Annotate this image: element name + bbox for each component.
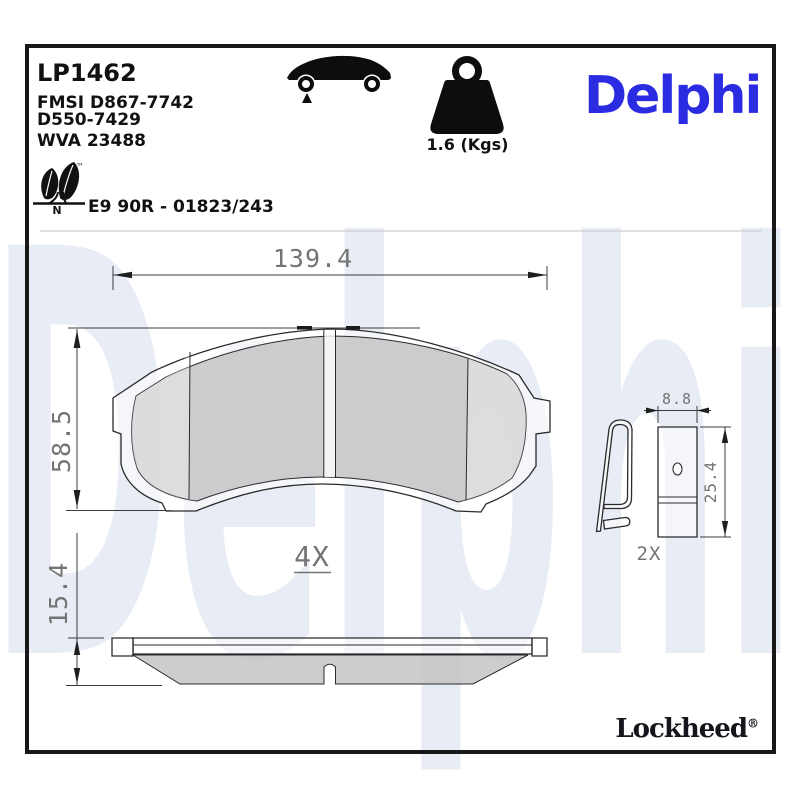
weight-icon (425, 52, 510, 146)
lockheed-wordmark: Lockheed (615, 714, 747, 744)
eco-mark-letter: N (52, 204, 61, 217)
front-quantity-label: 4X (294, 540, 330, 573)
homologation-number: E9 90R - 01823/243 (88, 197, 274, 217)
top-pip-left (297, 326, 312, 330)
side-end-tab-left (112, 638, 133, 656)
clip-views: 8.8 25.4 2X (597, 390, 732, 565)
leaf-icon: N ™ (30, 158, 90, 222)
weight-value: 1.6 (Kgs) (420, 135, 515, 154)
clip-front-view (658, 427, 697, 537)
fmsi-reference-2: D550-7429 (37, 110, 141, 130)
dim-thickness-label: 15.4 (44, 562, 73, 626)
clip-quantity-label: 2X (637, 543, 662, 565)
side-view: 15.4 4X (44, 533, 547, 686)
registered-symbol: ® (747, 716, 758, 730)
datasheet-page: Delphi 139.4 58.5 (0, 0, 800, 800)
lockheed-logo: Lockheed® (590, 714, 758, 744)
top-pip-right (346, 326, 360, 330)
side-end-tab-right (532, 638, 547, 656)
dim-thickness: 15.4 (44, 533, 162, 686)
side-friction-material (133, 655, 528, 684)
dim-clip-width: 8.8 (644, 390, 711, 423)
trademark-symbol: ™ (76, 162, 84, 171)
dim-clip-height-label: 25.4 (701, 461, 720, 504)
dim-clip-height: 25.4 (700, 427, 731, 537)
clip-hole (673, 463, 682, 475)
side-backplate (133, 638, 532, 654)
delphi-logo: Delphi (584, 70, 760, 122)
clip-profile (597, 420, 633, 532)
clip-profile-foot (604, 517, 630, 529)
dim-width: 139.4 (113, 244, 547, 290)
dim-width-label: 139.4 (273, 244, 353, 273)
car-icon (283, 52, 398, 111)
wva-reference: WVA 23488 (37, 131, 146, 151)
dim-clip-width-label: 8.8 (662, 390, 692, 408)
dim-height-label: 58.5 (47, 409, 76, 473)
part-number: LP1462 (37, 59, 137, 87)
front-view: 139.4 58.5 (47, 244, 550, 512)
center-slot (324, 330, 336, 478)
